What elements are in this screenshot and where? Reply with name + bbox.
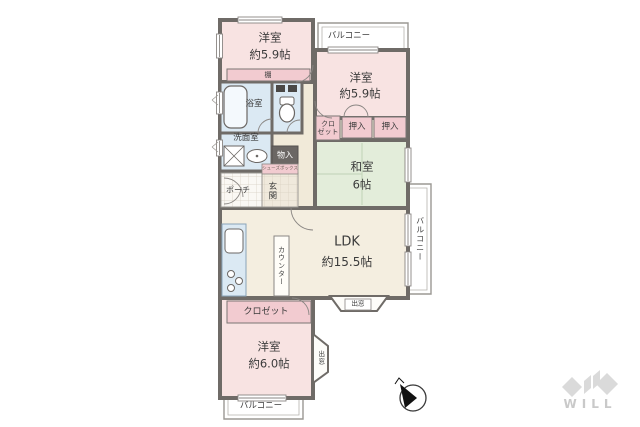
shelf-label: 棚 [265, 71, 272, 79]
balcony-top-label: バルコニー [328, 32, 370, 42]
toilet-shelf [276, 85, 285, 92]
oshiire-2-label: 押入 [381, 123, 398, 133]
balcony-bottom-label: バルコニー [240, 402, 282, 412]
stove-burner [228, 271, 235, 278]
japanese-room-size: 6帖 [353, 178, 372, 191]
will-logo-icon [562, 370, 618, 397]
toilet-bowl [280, 104, 295, 122]
closet-north-label: クロ ゼット [318, 120, 339, 136]
stove-burner [236, 278, 243, 285]
ldk-size: 約15.5帖 [322, 256, 373, 270]
stove-burner [228, 285, 235, 292]
floorplan-page: 洋室 約5.9帖 バルコニー 洋室 約5.9帖 棚 浴室 洗面室 クロ ゼット … [0, 0, 640, 427]
compass-icon [395, 378, 426, 411]
toilet-shelf [288, 85, 297, 92]
oshiire-1-label: 押入 [348, 123, 365, 133]
japanese-room-name: 和室 [351, 160, 374, 173]
shoe-box-label: シューズボックス [262, 166, 298, 171]
entrance-label: 玄関 [266, 182, 276, 201]
bedroom-s-name: 洋室 [258, 340, 281, 353]
bay-window-south-label: 出窓 [316, 351, 323, 366]
basin-drain [256, 155, 259, 158]
bedroom-nw-size: 約5.9帖 [249, 48, 290, 61]
bay-window-ldk-label: 出窓 [352, 300, 365, 307]
closet-north-line1: クロ [318, 120, 339, 128]
porch-label: ポーチ [226, 185, 250, 194]
bathroom-label: 浴室 [245, 100, 262, 110]
counter-label: カウンター [277, 246, 285, 286]
closet-north-line2: ゼット [318, 128, 339, 136]
monoire-label: 物入 [277, 150, 293, 159]
ldk-room [220, 208, 408, 298]
bathtub [224, 86, 247, 128]
bedroom-ne-name: 洋室 [350, 71, 373, 84]
ldk-name: LDK [334, 236, 360, 251]
closet-south-label: クロゼット [243, 307, 288, 317]
will-logo-text: WILL [564, 398, 617, 412]
bedroom-s-size: 約6.0帖 [248, 357, 289, 370]
bedroom-nw-name: 洋室 [259, 31, 282, 44]
bedroom-ne-size: 約5.9帖 [339, 87, 380, 100]
washroom-label: 洗面室 [233, 134, 259, 144]
kitchen-sink [225, 229, 243, 253]
balcony-right-label: バルコニー [415, 217, 424, 262]
